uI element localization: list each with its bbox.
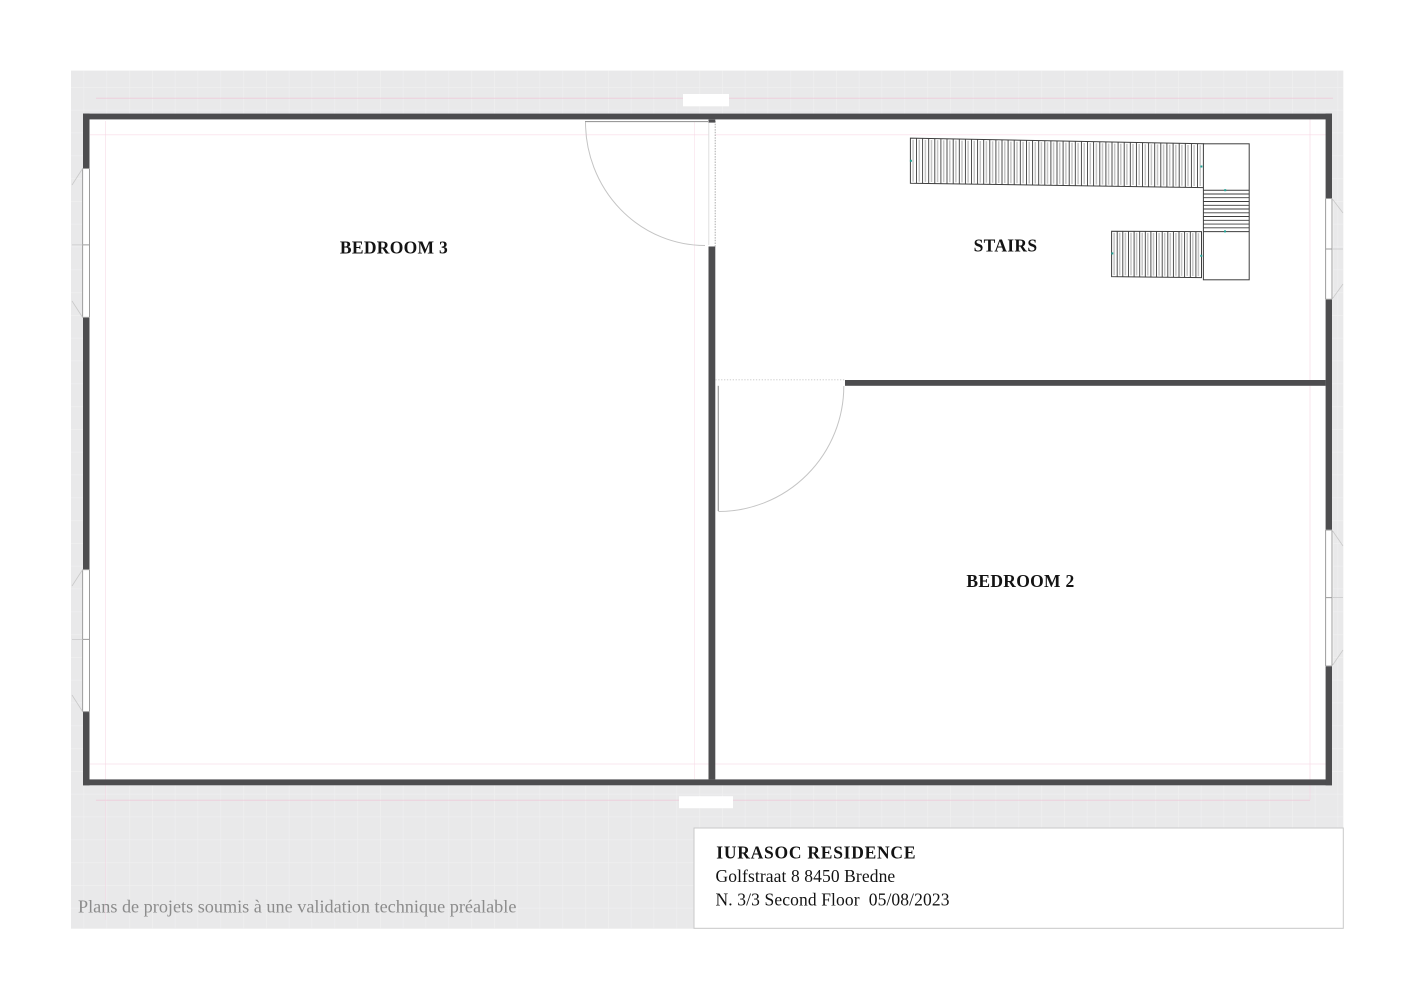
svg-text:Plans de projets soumis à une: Plans de projets soumis à une validation… [78, 896, 516, 916]
svg-text:BEDROOM 2: BEDROOM 2 [966, 571, 1074, 591]
svg-text:Golfstraat 8 8450 Bredne: Golfstraat 8 8450 Bredne [716, 866, 896, 886]
svg-text:IURASOC RESIDENCE: IURASOC RESIDENCE [716, 842, 916, 862]
svg-text:BEDROOM 3: BEDROOM 3 [340, 237, 448, 257]
svg-text:N. 3/3 Second Floor 05/08/202: N. 3/3 Second Floor 05/08/2023 [716, 890, 950, 910]
svg-text:STAIRS: STAIRS [974, 236, 1038, 256]
